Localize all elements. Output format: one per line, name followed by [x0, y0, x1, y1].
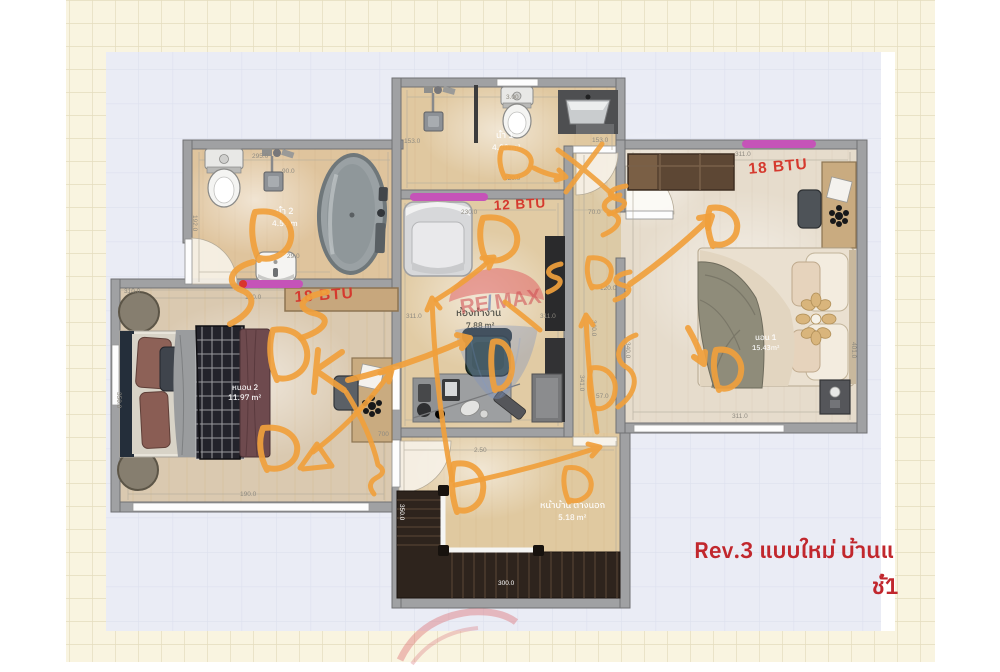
svg-text:341.0: 341.0: [578, 375, 585, 392]
svg-text:310.0: 310.0: [124, 288, 141, 295]
svg-text:350.0: 350.0: [115, 392, 122, 409]
svg-text:300.0: 300.0: [498, 580, 515, 587]
svg-text:700: 700: [378, 431, 389, 438]
svg-text:2.50: 2.50: [474, 447, 487, 454]
svg-text:190.0: 190.0: [240, 491, 257, 498]
svg-text:192.0: 192.0: [191, 215, 198, 232]
svg-text:311.0: 311.0: [406, 313, 422, 320]
svg-text:70.0: 70.0: [588, 209, 601, 216]
svg-text:3.00: 3.00: [506, 94, 519, 101]
svg-text:311.0: 311.0: [540, 313, 556, 320]
svg-text:295.0: 295.0: [252, 153, 269, 160]
svg-text:57.0: 57.0: [596, 393, 609, 400]
svg-text:153.0: 153.0: [404, 138, 421, 145]
svg-text:29.0: 29.0: [287, 253, 300, 260]
svg-text:90.0: 90.0: [282, 168, 295, 175]
svg-text:311.0: 311.0: [732, 413, 748, 420]
svg-text:12 BTU: 12 BTU: [493, 195, 546, 213]
svg-text:311.0: 311.0: [735, 151, 751, 158]
svg-text:230.0: 230.0: [461, 209, 478, 216]
svg-text:350.0: 350.0: [398, 504, 405, 521]
svg-text:401.0: 401.0: [850, 342, 857, 359]
